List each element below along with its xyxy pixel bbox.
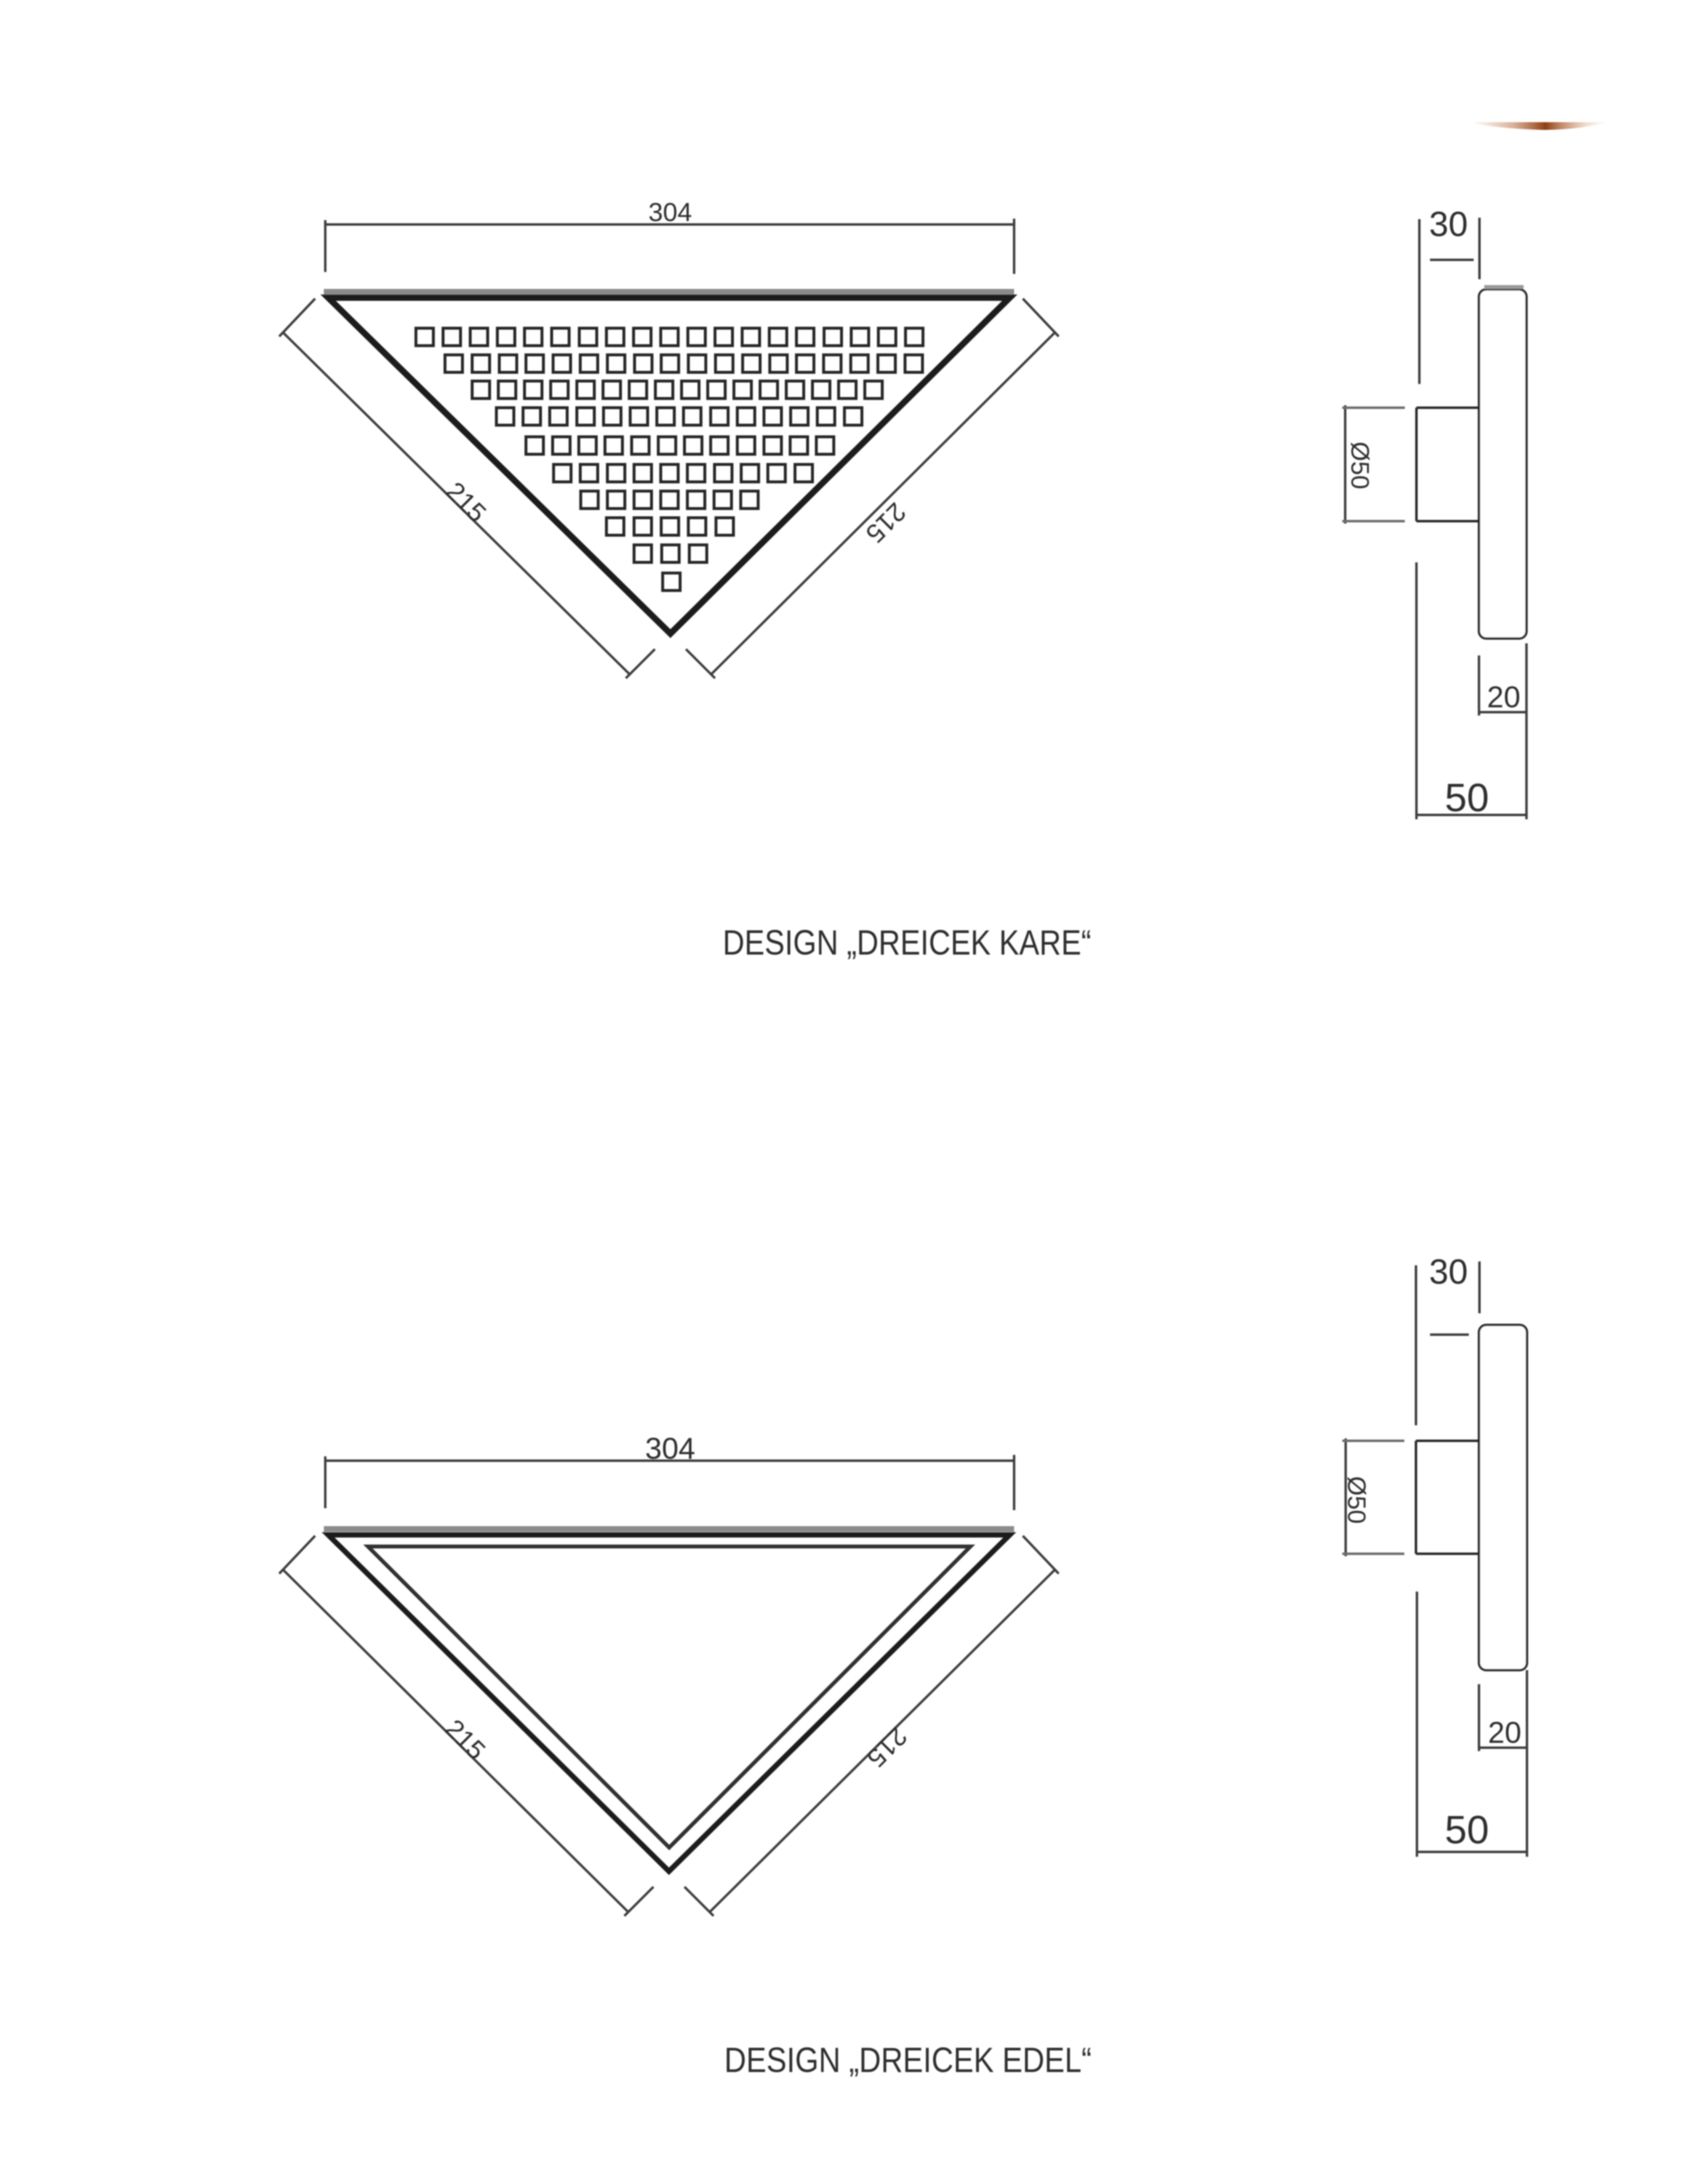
svg-text:50: 50 — [1445, 776, 1489, 820]
svg-text:20: 20 — [1488, 1716, 1522, 1750]
svg-text:30: 30 — [1429, 1253, 1468, 1291]
svg-text:215: 215 — [860, 497, 911, 548]
svg-text:304: 304 — [645, 1432, 695, 1466]
svg-text:Ø50: Ø50 — [1342, 1476, 1370, 1524]
svg-text:215: 215 — [440, 477, 492, 528]
svg-text:215: 215 — [861, 1722, 913, 1773]
svg-text:DESIGN „DREICEK EDEL“: DESIGN „DREICEK EDEL“ — [724, 2041, 1092, 2080]
svg-text:30: 30 — [1429, 205, 1468, 244]
svg-text:20: 20 — [1487, 681, 1521, 714]
svg-text:215: 215 — [440, 1714, 491, 1765]
svg-text:DESIGN „DREICEK KARE“: DESIGN „DREICEK KARE“ — [723, 924, 1091, 962]
svg-text:304: 304 — [648, 198, 692, 227]
svg-text:Ø50: Ø50 — [1346, 442, 1374, 489]
svg-text:50: 50 — [1445, 1808, 1489, 1852]
